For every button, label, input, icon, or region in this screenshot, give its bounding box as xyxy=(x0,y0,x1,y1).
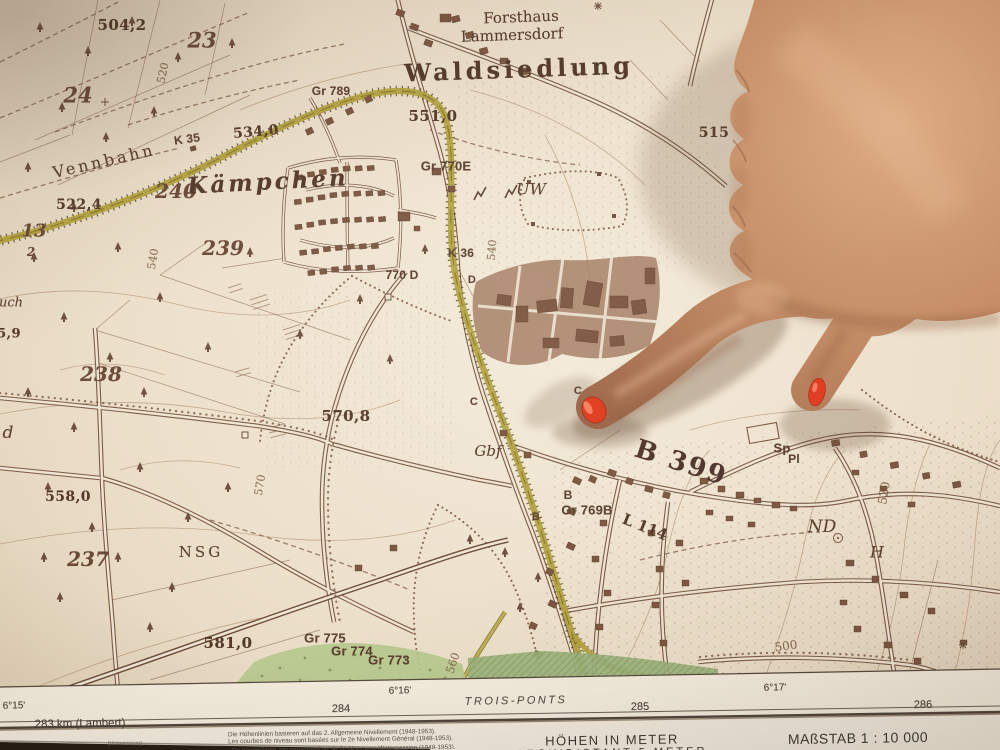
photo-of-topographic-map: 504,22324520ForsthausLammersdorfWaldsied… xyxy=(0,0,1000,750)
legend-fragment-left: Bildmessung xyxy=(108,741,142,748)
legend-scale: MAßSTAB 1 : 10 000 xyxy=(788,729,928,747)
pointing-hand xyxy=(0,0,1000,750)
